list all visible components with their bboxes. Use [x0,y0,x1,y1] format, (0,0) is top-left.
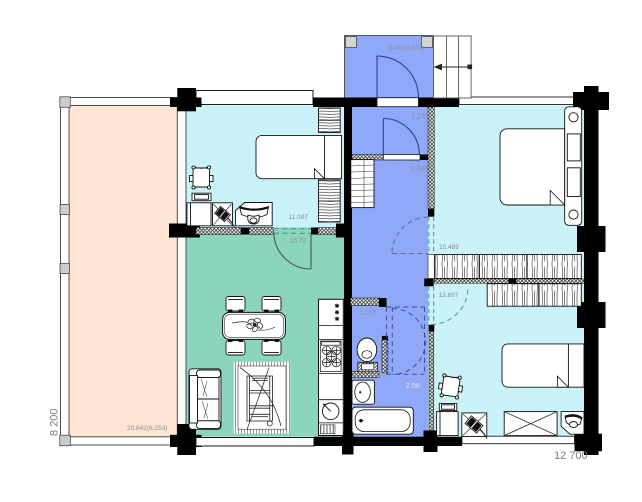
svg-text:15.72: 15.72 [290,238,307,245]
svg-text:3.243(0.974): 3.243(0.974) [388,45,425,52]
svg-text:2.00: 2.00 [406,383,420,390]
svg-text:11.087: 11.087 [289,214,309,221]
svg-text:1.225: 1.225 [360,310,377,317]
svg-text:8.186: 8.186 [411,166,428,173]
svg-text:8 200: 8 200 [49,408,61,436]
svg-text:2.275: 2.275 [412,114,429,121]
svg-text:13.697: 13.697 [439,292,459,299]
svg-text:15.489: 15.489 [439,244,459,251]
svg-text:20.842(6.253): 20.842(6.253) [127,425,167,432]
svg-text:12 700: 12 700 [554,450,588,462]
